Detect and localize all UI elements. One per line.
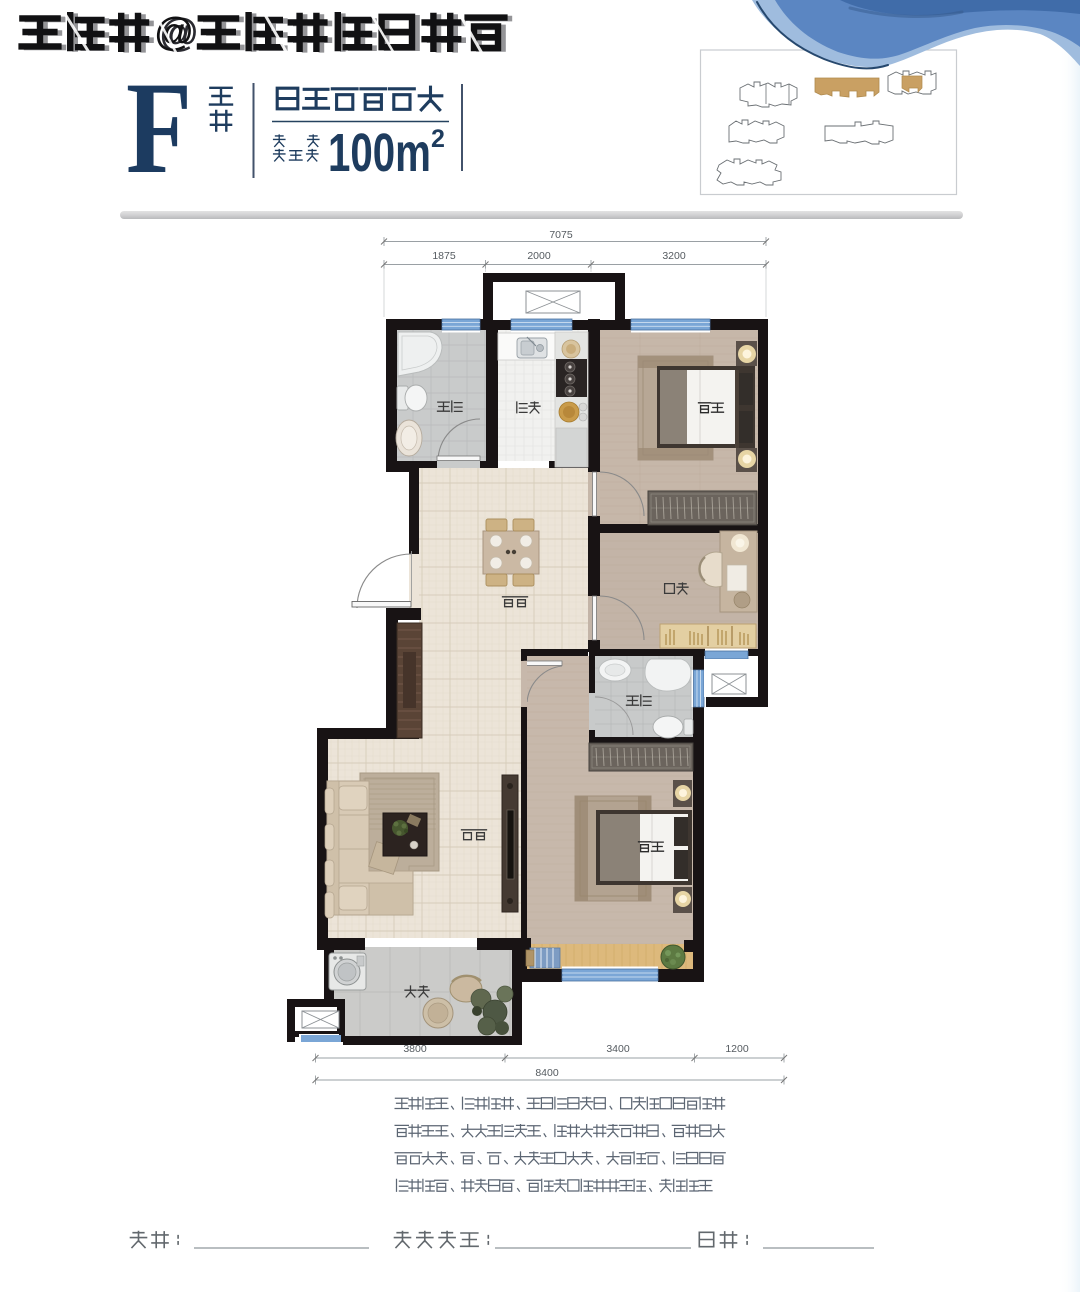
svg-text:8400: 8400: [535, 1067, 559, 1079]
svg-text:100m: 100m: [328, 123, 431, 183]
svg-text:3400: 3400: [606, 1043, 630, 1055]
svg-text:1200: 1200: [725, 1043, 749, 1055]
svg-text:1875: 1875: [432, 250, 456, 262]
svg-text:2000: 2000: [527, 250, 551, 262]
svg-text:2: 2: [431, 125, 445, 153]
svg-text:F: F: [126, 54, 192, 201]
svg-text:7075: 7075: [549, 229, 573, 241]
svg-text:3200: 3200: [662, 250, 686, 262]
svg-text:3800: 3800: [403, 1043, 427, 1055]
